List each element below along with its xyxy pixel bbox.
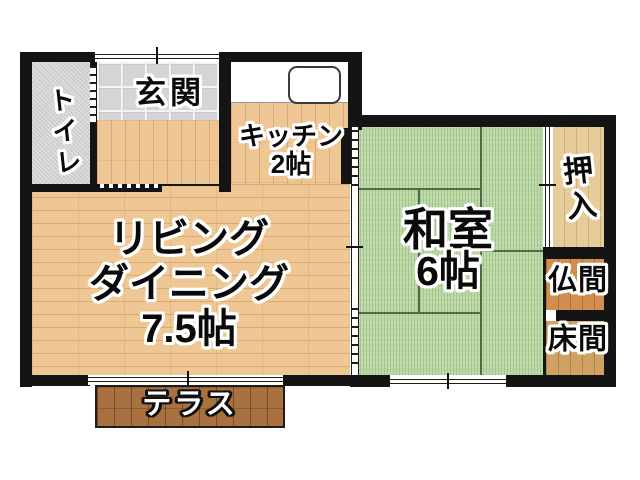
terrace-label: テラス — [142, 389, 237, 420]
buddhist-altar-room-label: 仏間 — [548, 265, 608, 296]
living-dining-name-line2: ダイニング — [89, 262, 289, 307]
partition-rail-marks — [352, 130, 358, 192]
toilet-door — [90, 66, 96, 124]
living-dining-label: リビング ダイニング 7.5帖 — [89, 217, 289, 351]
wall-outer-bottom-left-b — [281, 375, 352, 386]
closet-sliding-door — [543, 127, 553, 247]
wall-outer-bottom-left-a — [20, 375, 90, 386]
living-dining-name-line1: リビング — [89, 217, 289, 262]
closet-door-tick — [539, 184, 556, 186]
floor-plan: トイレ 玄関 キッチン 2帖 リビング ダイニング 7.5帖 和室 6帖 押入 … — [0, 0, 640, 480]
wall-outer-top-mid — [217, 52, 362, 62]
entrance-label: 玄関 — [135, 76, 205, 109]
kitchen-size: 2帖 — [239, 150, 343, 178]
japanese-room-name: 和室 — [403, 209, 493, 252]
wall-japanese-room-top — [350, 115, 616, 127]
wall-outer-left — [20, 52, 32, 387]
entrance-step-marks — [100, 184, 160, 188]
partition-rail-marks — [352, 308, 358, 364]
partition-tick — [346, 246, 363, 248]
terrace-sliding-door — [88, 375, 283, 385]
japanese-room-label: 和室 6帖 — [403, 209, 493, 291]
wall-closet-bottom — [543, 247, 616, 259]
kitchen-sink — [288, 66, 341, 104]
tatami-grid-line — [357, 312, 482, 314]
terrace-door-tick — [187, 371, 189, 387]
wall-entrance-kitchen — [219, 52, 231, 192]
wall-tatami-right-thin — [543, 259, 546, 375]
living-japanese-room-partition — [351, 127, 359, 375]
wall-outer-bottom-right-b — [506, 375, 616, 387]
living-dining-size: 7.5帖 — [89, 306, 289, 351]
entrance-step-floor — [97, 120, 219, 184]
entrance-door-tick — [156, 47, 158, 64]
wall-outer-top-left — [20, 52, 97, 62]
japanese-room-size: 6帖 — [403, 252, 493, 291]
step-dash-pattern — [100, 184, 160, 188]
hall-opening-top-line — [160, 184, 219, 186]
japanese-room-window-tick — [447, 373, 449, 389]
kitchen-name: キッチン — [239, 122, 343, 150]
closet-label: 押入 — [556, 153, 596, 226]
wall-butsuma-tokonoma — [556, 310, 616, 321]
wall-outer-bottom-right-a — [350, 375, 390, 387]
kitchen-label: キッチン 2帖 — [239, 122, 343, 178]
tokonoma-alcove-label: 床間 — [548, 324, 608, 355]
